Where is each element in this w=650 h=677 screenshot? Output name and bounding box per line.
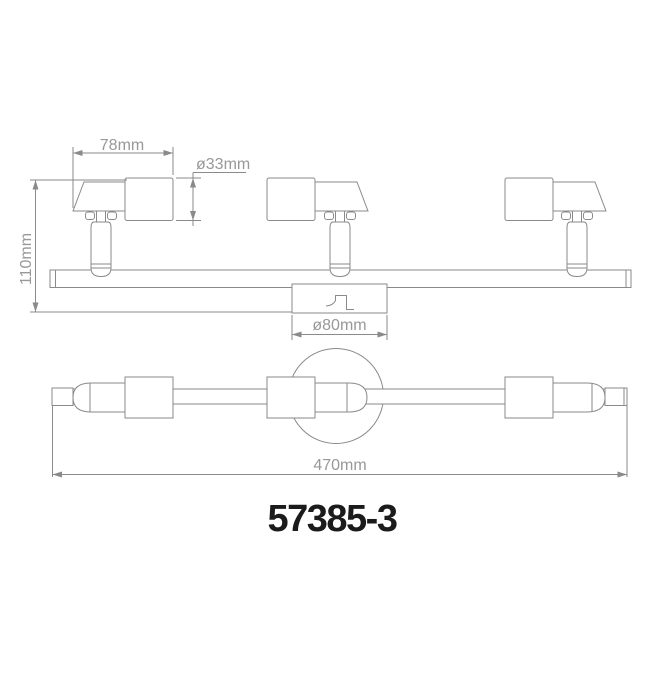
bar-endcap-left xyxy=(52,388,73,406)
dim-head-diameter: ø33mm xyxy=(176,156,250,226)
stem-right xyxy=(562,211,593,277)
pivot-nub xyxy=(584,212,593,220)
pivot-neck xyxy=(336,211,345,222)
head-block-right xyxy=(505,377,553,418)
stem-left xyxy=(86,211,117,277)
side-view: 78mm ø33mm 110mm ø80mm xyxy=(18,137,631,340)
arrowhead-right xyxy=(378,332,388,338)
head-pill-right xyxy=(553,383,605,412)
arrowhead-right xyxy=(618,472,628,478)
dim-label-head-width: 78mm xyxy=(100,137,144,154)
pivot-neck xyxy=(97,211,106,222)
arrowhead-left xyxy=(73,150,83,156)
head-cylinder xyxy=(267,178,315,221)
stem-tip xyxy=(330,268,350,277)
arrowhead-up xyxy=(190,178,196,188)
stem-capsule xyxy=(330,222,350,268)
canopy-box xyxy=(292,284,387,313)
pivot-neck xyxy=(573,211,582,222)
stem-middle xyxy=(325,211,356,277)
bottom-view: 470mm xyxy=(52,349,627,478)
arrowhead-up xyxy=(33,180,39,190)
head-block-left xyxy=(125,377,173,418)
pill-body xyxy=(315,383,367,412)
head-cylinder xyxy=(125,178,173,221)
bar-endcap-right xyxy=(605,388,627,406)
head-arm xyxy=(315,182,368,211)
arrowhead-right xyxy=(164,150,174,156)
arrowhead-left xyxy=(53,472,63,478)
canopy-outline xyxy=(292,284,387,313)
pivot-nub xyxy=(347,212,356,220)
arrowhead-down xyxy=(33,303,39,313)
pivot-nub xyxy=(325,212,334,220)
pill-body xyxy=(73,383,126,412)
model-number: 57385-3 xyxy=(268,498,397,540)
head-arm xyxy=(553,182,606,211)
stem-capsule xyxy=(91,222,111,268)
stem-tip xyxy=(567,268,587,277)
stem-tip xyxy=(91,268,111,277)
head-pill-middle xyxy=(315,383,367,412)
dim-label-overall-length: 470mm xyxy=(313,457,366,474)
pivot-nub xyxy=(562,212,571,220)
dim-canopy-diameter: ø80mm xyxy=(292,315,387,340)
fixture-dimension-drawing: 78mm ø33mm 110mm ø80mm xyxy=(0,0,650,677)
head-block-middle xyxy=(267,377,315,418)
pivot-nub xyxy=(108,212,117,220)
arrowhead-down xyxy=(190,211,196,221)
head-cylinder xyxy=(505,178,553,221)
dim-label-head-diameter: ø33mm xyxy=(196,156,250,173)
pivot-nub xyxy=(86,212,95,220)
head-pill-left xyxy=(73,383,126,412)
technical-drawing-page: 78mm ø33mm 110mm ø80mm xyxy=(0,0,650,677)
head-arm xyxy=(73,182,125,211)
arrowhead-left xyxy=(292,332,302,338)
stem-capsule xyxy=(567,222,587,268)
dim-label-canopy-diameter: ø80mm xyxy=(312,317,366,334)
pill-body xyxy=(553,383,605,412)
dim-label-height: 110mm xyxy=(18,233,35,285)
